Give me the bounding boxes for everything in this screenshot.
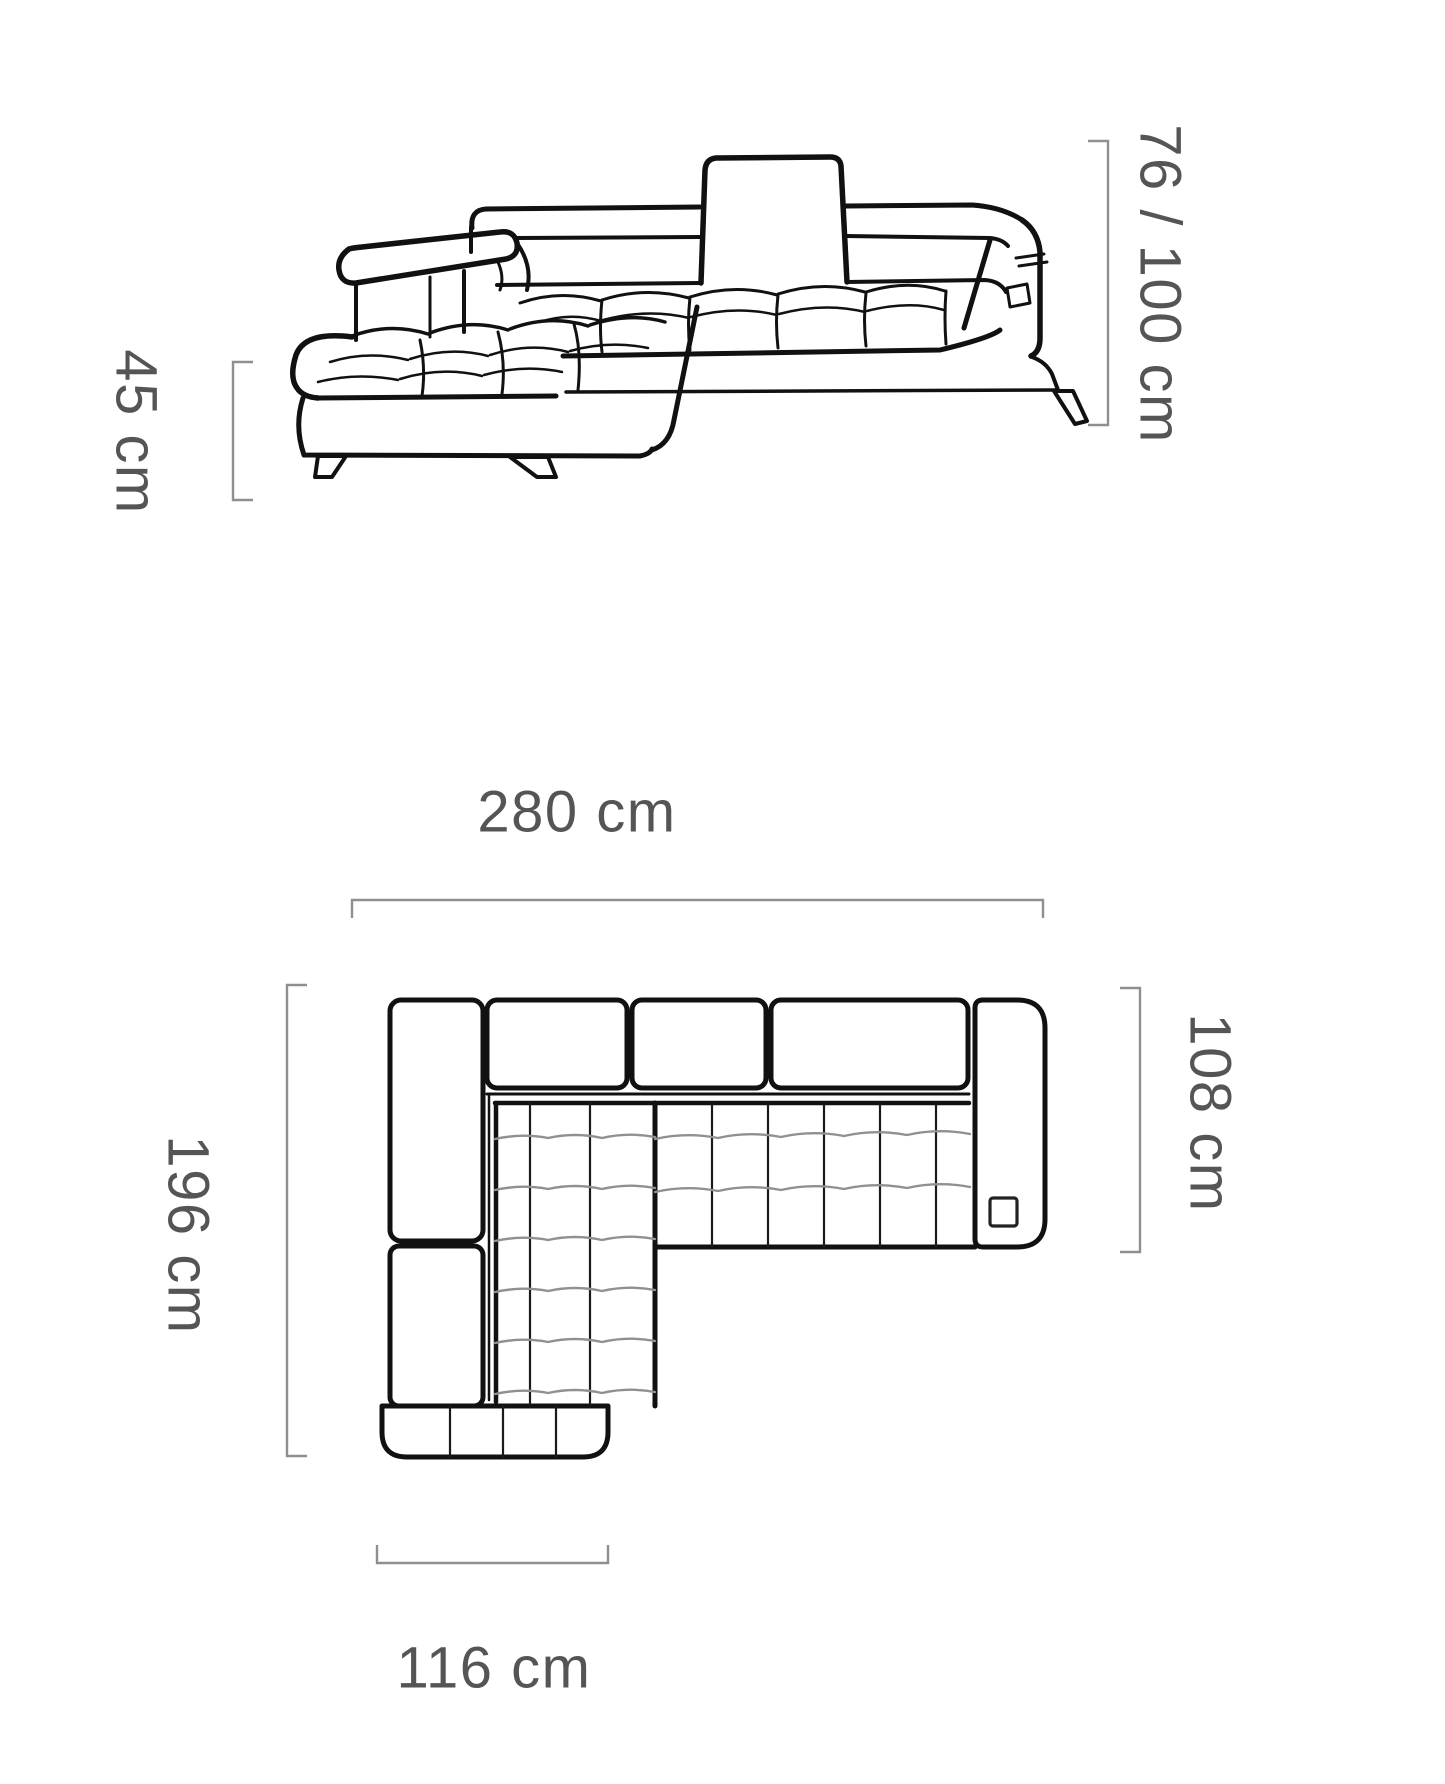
sofa-plan-drawing (382, 1000, 1045, 1457)
dimension-bracket-45cm (233, 362, 253, 500)
sofa-front-drawing (293, 157, 1087, 477)
dimension-label-seat-height: 45 cm (103, 349, 170, 514)
dimension-brackets-front (233, 141, 1108, 500)
dimension-bracket-196cm (287, 985, 307, 1456)
dimension-bracket-280cm (352, 900, 1043, 918)
dimension-label-side-length: 196 cm (155, 1135, 222, 1334)
dimension-bracket-116cm (377, 1545, 608, 1563)
dimension-bracket-108cm (1120, 988, 1140, 1252)
diagram-canvas: 45 cm 76 / 100 cm 280 cm 196 cm 108 cm 1… (0, 0, 1445, 1784)
dimension-label-total-width: 280 cm (477, 779, 676, 846)
dimension-bracket-76-100cm (1088, 141, 1108, 425)
dimension-label-chaise-width: 116 cm (397, 1635, 592, 1702)
dimension-label-body-depth: 108 cm (1177, 1013, 1244, 1212)
sofa-line-art (0, 0, 1445, 1784)
dimension-label-back-height: 76 / 100 cm (1127, 124, 1194, 444)
